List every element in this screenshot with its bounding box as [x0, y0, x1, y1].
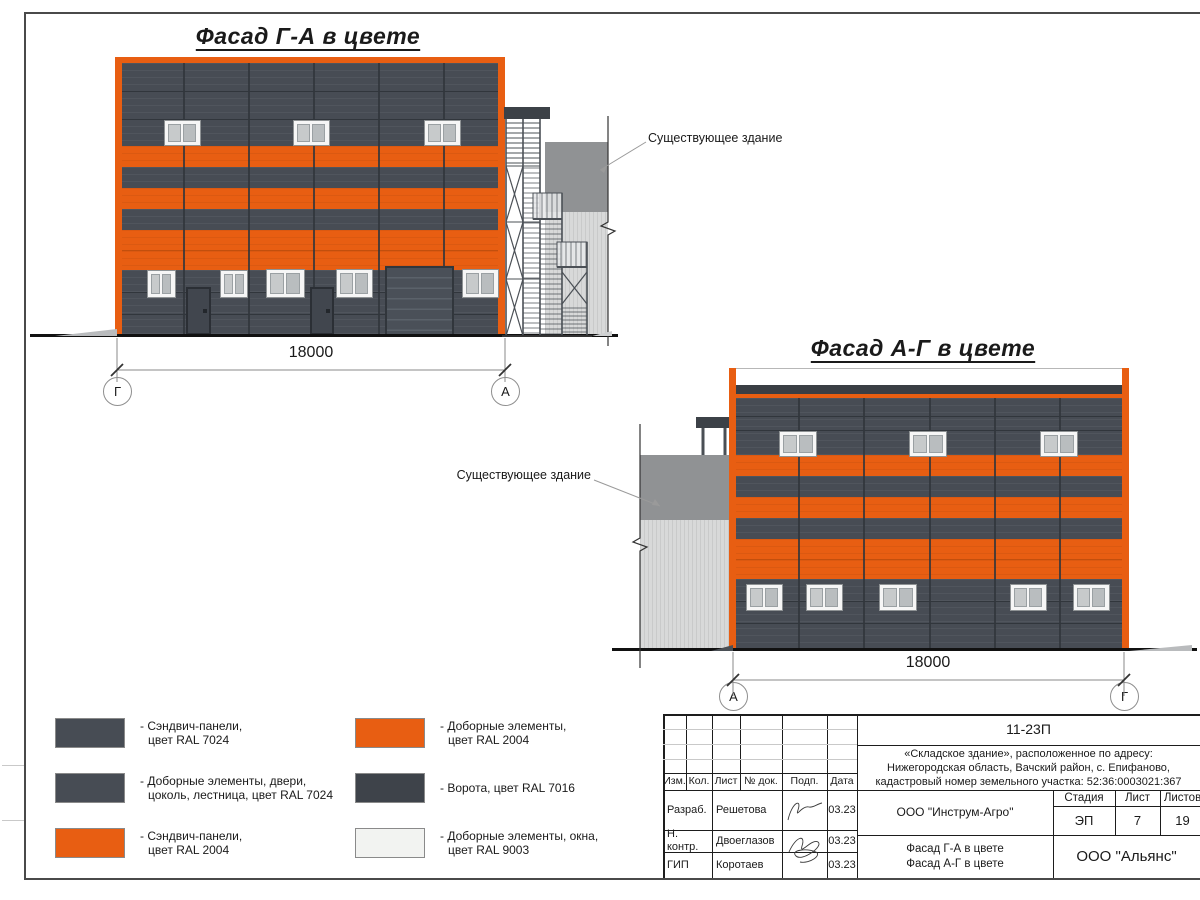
- tb-sheets-label: Листов: [1160, 790, 1200, 806]
- tb-col-ndok: № док.: [740, 773, 782, 790]
- corner-post: [115, 57, 122, 336]
- corner-post: [1122, 368, 1129, 650]
- window-pane: [825, 588, 838, 607]
- legend-line: - Доборные элементы, окна,: [440, 829, 598, 844]
- legend-swatch-ral7024: [55, 718, 125, 748]
- window-pane: [481, 273, 494, 294]
- tb-hline-thin: [663, 744, 857, 745]
- window-pane: [783, 435, 797, 453]
- window-pane: [913, 435, 927, 453]
- tb-date-2: 03.23: [827, 830, 857, 852]
- panel-seam: [122, 91, 498, 92]
- door-handle: [326, 309, 330, 313]
- tb-role-razrab: Разраб.: [663, 790, 712, 830]
- window: [1010, 584, 1047, 611]
- parapet-band: [736, 385, 1122, 394]
- tb-name-dvoeglazov: Двоеглазов: [712, 830, 782, 852]
- legend-item-windows-9003: - Доборные элементы, окна,цвет RAL 9003: [355, 828, 598, 858]
- legend-label: - Доборные элементы,цвет RAL 2004: [440, 719, 566, 748]
- gate: [385, 266, 454, 336]
- drawing-sheet: Фасад Г-А в цвете Фасад А-Г в цвете Суще…: [0, 0, 1200, 900]
- window: [1040, 431, 1078, 457]
- legend-swatch-ral9003: [355, 828, 425, 858]
- window-pane: [162, 274, 171, 294]
- legend-item-gates-7016: - Ворота, цвет RAL 7016: [355, 773, 575, 803]
- legend-swatch-ral2004: [55, 828, 125, 858]
- window-pane: [340, 273, 353, 294]
- window: [336, 269, 373, 298]
- window: [779, 431, 817, 457]
- window-pane: [1060, 435, 1074, 453]
- tb-date-3: 03.23: [827, 852, 857, 878]
- window-pane: [428, 124, 441, 142]
- bay-seam: [183, 63, 185, 336]
- tb-col-data: Дата: [827, 773, 857, 790]
- window: [746, 584, 783, 611]
- existing-building-upper-left: [545, 142, 608, 212]
- tb-col-podp: Подп.: [782, 773, 827, 790]
- tb-sheet-label: Лист: [1115, 790, 1160, 806]
- tb-col-izm: Изм.: [663, 773, 686, 790]
- ground-line-left: [30, 334, 618, 337]
- bay-seam: [248, 63, 250, 336]
- window-pane: [235, 274, 244, 294]
- window-pane: [224, 274, 233, 294]
- tb-drawing-name-line2: Фасад А-Г в цвете: [906, 857, 1004, 872]
- tb-name-reshetova: Решетова: [712, 790, 782, 830]
- facade-stripe-ral7024: [122, 167, 498, 188]
- existing-building-lower-right: [640, 520, 733, 650]
- window: [293, 120, 330, 146]
- window-pane: [312, 124, 325, 142]
- legend-label: - Сэндвич-панели,цвет RAL 7024: [140, 719, 242, 748]
- tb-role-gip: ГИП: [663, 852, 712, 878]
- legend-label: - Ворота, цвет RAL 7016: [440, 781, 575, 796]
- legend-swatch-ral7024-trim: [55, 773, 125, 803]
- facade-stripe-ral7024: [122, 209, 498, 230]
- legend-swatch-ral2004-trim: [355, 718, 425, 748]
- legend-label: - Доборные элементы, двери,цоколь, лестн…: [140, 774, 333, 803]
- legend-label: - Сэндвич-панели,цвет RAL 2004: [140, 829, 242, 858]
- tb-address: «Складское здание», расположенное по адр…: [857, 745, 1200, 790]
- window-pane: [810, 588, 823, 607]
- tb-sheet-value: 7: [1115, 806, 1160, 835]
- window: [164, 120, 201, 146]
- door: [310, 287, 334, 335]
- tb-drawing-name-line1: Фасад Г-А в цвете: [906, 842, 1004, 857]
- tb-name-korotaev: Коротаев: [712, 852, 782, 878]
- window-pane: [799, 435, 813, 453]
- window-pane: [750, 588, 763, 607]
- legend-swatch-ral7016: [355, 773, 425, 803]
- window-pane: [1092, 588, 1105, 607]
- window-pane: [899, 588, 913, 607]
- tb-drawing-name: Фасад Г-А в цвете Фасад А-Г в цвете: [857, 835, 1053, 878]
- window-pane: [355, 273, 368, 294]
- corner-post: [729, 368, 736, 650]
- window-pane: [1077, 588, 1090, 607]
- window-pane: [1014, 588, 1027, 607]
- window-pane: [1029, 588, 1042, 607]
- window-pane: [883, 588, 897, 607]
- window-pane: [270, 273, 284, 294]
- legend-line: цоколь, лестница, цвет RAL 7024: [148, 788, 333, 803]
- tb-stage-value: ЭП: [1053, 806, 1115, 835]
- window-pane: [466, 273, 479, 294]
- tb-address-line3: кадастровый номер земельного участка: 52…: [875, 775, 1181, 789]
- legend-label: - Доборные элементы, окна,цвет RAL 9003: [440, 829, 598, 858]
- window-pane: [297, 124, 310, 142]
- legend-line: - Доборные элементы, двери,: [140, 774, 333, 789]
- legend-line: цвет RAL 9003: [448, 843, 598, 858]
- legend-item-panels-2004: - Сэндвич-панели,цвет RAL 2004: [55, 828, 242, 858]
- window-pane: [443, 124, 456, 142]
- tb-sheets-value: 19: [1160, 806, 1200, 835]
- legend-item-trim-2004: - Доборные элементы,цвет RAL 2004: [355, 718, 566, 748]
- window: [879, 584, 917, 611]
- signature-marks: [782, 790, 827, 878]
- window-pane: [183, 124, 196, 142]
- tb-col-list: Лист: [712, 773, 740, 790]
- legend-item-trim-7024: - Доборные элементы, двери,цоколь, лестн…: [55, 773, 333, 803]
- existing-building-lower-left: [545, 212, 608, 336]
- legend-line: - Сэндвич-панели,: [140, 719, 242, 734]
- door: [186, 287, 211, 335]
- tb-date-1: 03.23: [827, 790, 857, 830]
- facade-stripe-ral2004: [122, 188, 498, 209]
- tb-org: ООО "Альянс": [1053, 835, 1200, 878]
- window: [909, 431, 947, 457]
- panel-seam: [122, 250, 498, 251]
- legend-line: цвет RAL 2004: [148, 843, 242, 858]
- window: [424, 120, 461, 146]
- tb-role-nkontr: Н. контр.: [663, 830, 712, 852]
- window-pane: [765, 588, 778, 607]
- bay-seam: [378, 63, 380, 336]
- tb-col-kol: Кол.: [686, 773, 712, 790]
- legend-line: - Ворота, цвет RAL 7016: [440, 781, 575, 796]
- tb-company: ООО "Инструм-Агро": [857, 790, 1053, 835]
- window-pane: [929, 435, 943, 453]
- window-pane: [1044, 435, 1058, 453]
- window: [462, 269, 499, 298]
- legend-line: цвет RAL 2004: [448, 733, 566, 748]
- existing-building-upper-right: [640, 455, 733, 520]
- window: [147, 270, 176, 298]
- corner-post: [498, 57, 505, 336]
- tb-address-line2: Нижегородская область, Вачский район, с.…: [887, 761, 1170, 775]
- parapet-top-line: [736, 368, 1122, 369]
- tb-address-line1: «Складское здание», расположенное по адр…: [904, 747, 1153, 761]
- window-pane: [168, 124, 181, 142]
- tb-hline-thin: [663, 759, 857, 760]
- tb-stage-label: Стадия: [1053, 790, 1115, 806]
- window: [266, 269, 305, 298]
- tb-doc-number: 11-23П: [857, 714, 1200, 745]
- legend-line: цвет RAL 7024: [148, 733, 242, 748]
- window-pane: [286, 273, 300, 294]
- legend-line: - Сэндвич-панели,: [140, 829, 242, 844]
- bay-seam: [863, 398, 865, 650]
- window: [220, 270, 248, 298]
- window-pane: [151, 274, 160, 294]
- bay-seam: [994, 398, 996, 650]
- ground-line-right: [612, 648, 1197, 651]
- legend-item-panels-7024: - Сэндвич-панели,цвет RAL 7024: [55, 718, 242, 748]
- door-handle: [203, 309, 207, 313]
- window: [806, 584, 843, 611]
- legend-line: - Доборные элементы,: [440, 719, 566, 734]
- facade-stripe-ral2004: [122, 146, 498, 167]
- window: [1073, 584, 1110, 611]
- tb-hline-thin: [663, 729, 857, 730]
